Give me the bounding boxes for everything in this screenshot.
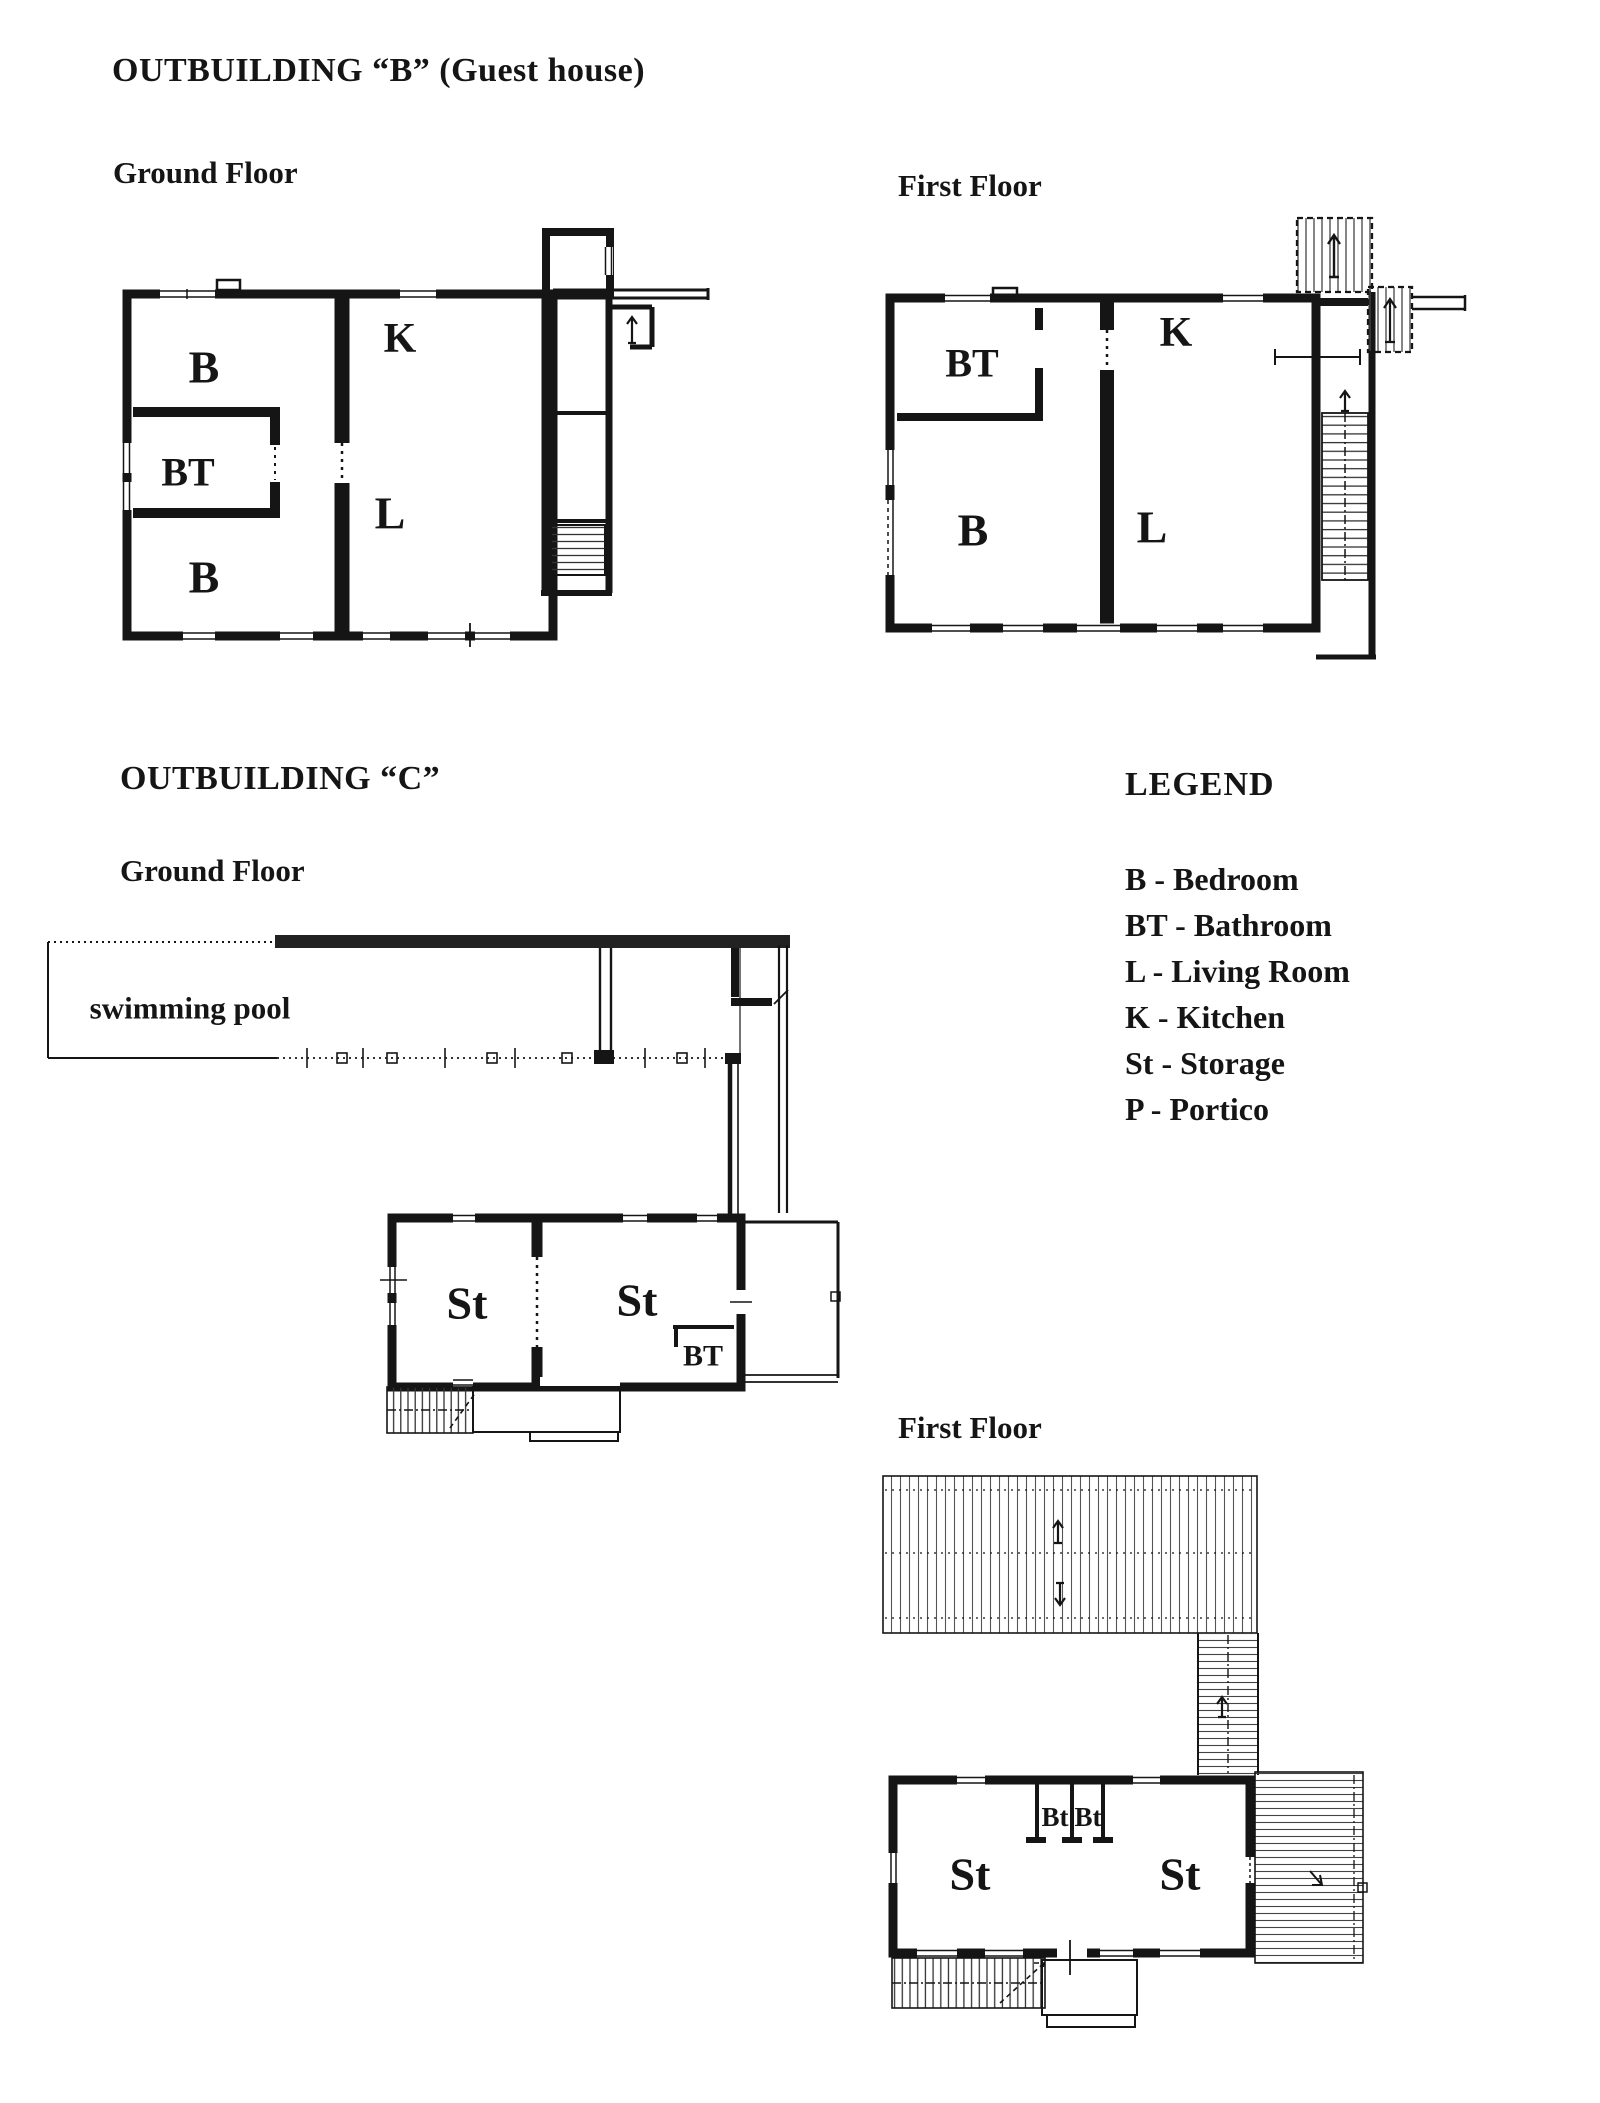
windows [886,294,1264,633]
outbuilding-b-title: OUTBUILDING “B” (Guest house) [112,52,645,90]
up-arrow-icon [1340,391,1350,411]
room-label-bedroom-top: B [189,342,220,393]
room-label-kitchen: K [384,316,417,362]
side-terrace [1255,1772,1367,1963]
right-annex [541,232,652,593]
stairs [1322,391,1368,580]
room-label-living: L [1137,502,1168,553]
stair-corridor [1275,292,1376,657]
porch [473,1387,620,1441]
stairs [551,525,605,575]
legend-title: LEGEND [1125,766,1350,804]
legend-list: B - Bedroom BT - Bathroom L - Living Roo… [1125,856,1350,1132]
legend-item-bathroom: BT - Bathroom [1125,902,1350,948]
windows [380,1214,717,1389]
legend-item-portico: P - Portico [1125,1086,1350,1132]
room-label-living: L [375,488,406,539]
room-labels: St Bt Bt St [950,1802,1202,1900]
hatched-wall [275,935,790,948]
room-label-bathroom: BT [945,341,999,386]
room-label-storage-left: St [950,1849,992,1900]
legend: LEGEND B - Bedroom BT - Bathroom L - Liv… [1125,766,1350,1132]
room-labels: St St BT [447,1275,723,1373]
stairs [387,1387,476,1433]
b-ground-floor-label: Ground Floor [113,155,298,191]
roof-terrace [883,1476,1257,1633]
room-label-storage-right: St [617,1275,659,1326]
legend-item-living-room: L - Living Room [1125,948,1350,994]
room-label-storage-right: St [1160,1849,1202,1900]
outbuilding-c-title: OUTBUILDING “C” [120,760,440,798]
room-label-kitchen: K [1160,310,1193,356]
room-label-storage-left: St [447,1278,489,1329]
portico-structure [275,935,790,1217]
roof-balconies [1297,218,1465,352]
room-label-bathroom: BT [161,450,215,495]
room-label-bedroom-bottom: B [189,552,220,603]
c-ground-floor-label: Ground Floor [120,853,305,889]
wall-bump [217,280,240,290]
swimming-pool-label: swimming pool [90,991,291,1026]
legend-item-storage: St - Storage [1125,1040,1350,1086]
swimming-pool: swimming pool [48,942,740,1058]
floor-plan-document: OUTBUILDING “B” (Guest house) Ground Flo… [0,0,1600,2103]
legend-item-kitchen: K - Kitchen [1125,994,1350,1040]
legend-item-bedroom: B - Bedroom [1125,856,1350,902]
storage-building: St Bt Bt St [889,1776,1255,1976]
c-first-floor-label: First Floor [898,1410,1042,1446]
c-first-floor-plan: St Bt Bt St [860,1455,1520,2103]
room-label-bt-left: Bt [1042,1802,1069,1832]
room-labels: B BT B K L [161,316,416,603]
room-labels: BT B K L [945,310,1192,556]
room-label-bedroom: B [958,505,989,556]
porch [1042,1960,1137,2027]
b-ground-floor-plan: B BT B K L [40,195,760,660]
c-ground-floor-plan: swimming pool [30,920,910,1465]
stair-corridor [1198,1633,1258,1775]
room-label-bt-right: Bt [1075,1802,1102,1832]
room-label-bathroom: BT [683,1340,723,1373]
up-arrow-icon [627,317,637,343]
interior-walls [897,302,1115,628]
storage-building: St St BT [380,1214,840,1389]
b-first-floor-plan: BT B K L [870,195,1500,680]
stairs [892,1958,1045,2008]
